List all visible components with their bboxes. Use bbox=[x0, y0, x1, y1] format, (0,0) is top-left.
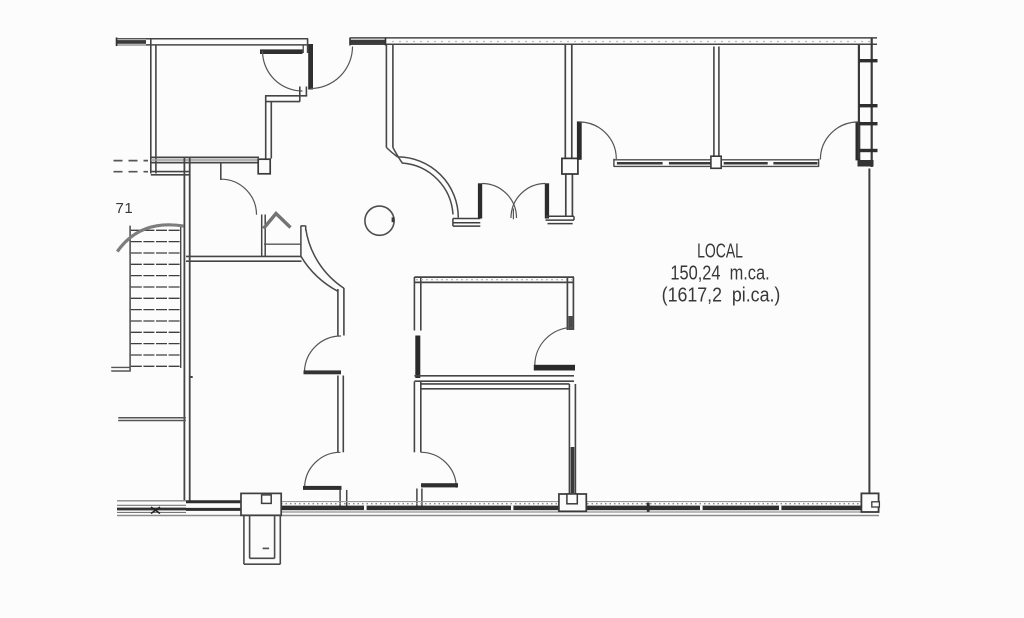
svg-text:71: 71 bbox=[116, 200, 134, 217]
svg-text:LOCAL: LOCAL bbox=[697, 239, 743, 262]
svg-text:150,24 m.ca.: 150,24 m.ca. bbox=[670, 261, 769, 284]
svg-text:(1617,2 pi.ca.): (1617,2 pi.ca.) bbox=[662, 285, 781, 307]
